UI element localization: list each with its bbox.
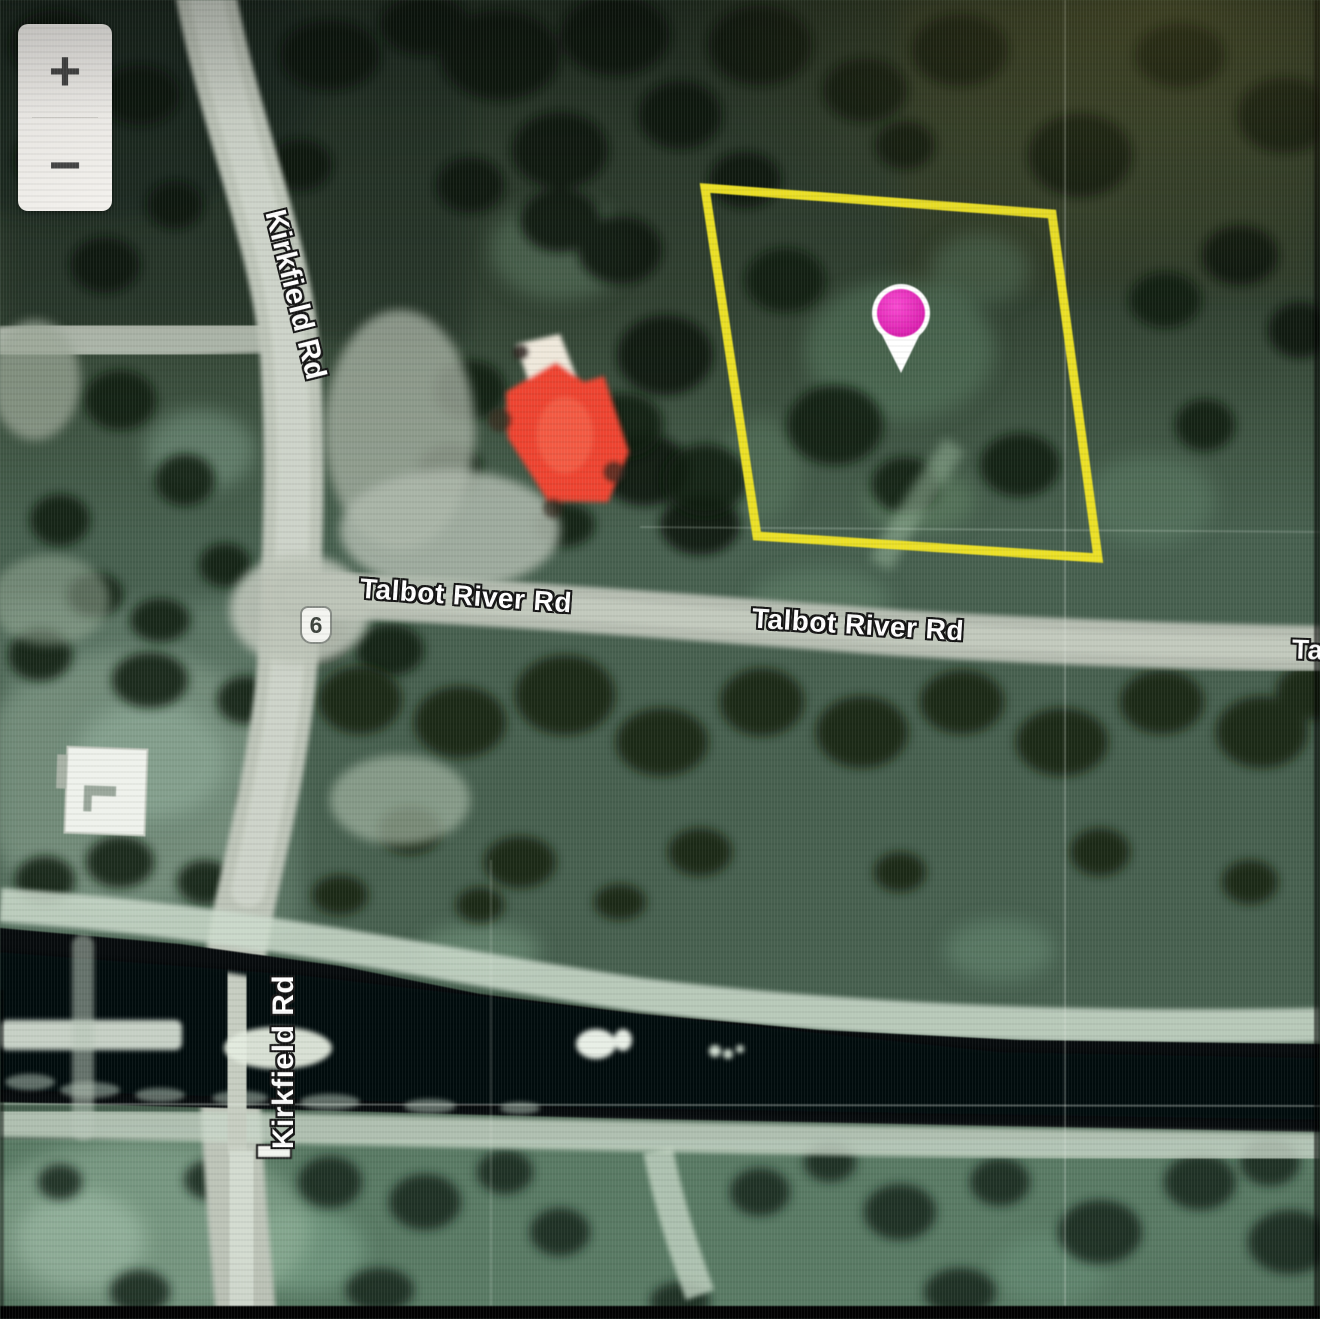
route-6-shield: 6: [300, 606, 332, 644]
road-label-talbot-truncated: Ta: [1292, 635, 1320, 664]
kirkfield-bridge: [232, 975, 242, 1155]
zoom-control: + −: [18, 24, 112, 211]
zoom-out-button[interactable]: −: [18, 118, 112, 211]
canal-wall: [72, 935, 94, 1140]
pin-head: [877, 289, 925, 337]
satellite-imagery: [0, 0, 1320, 1319]
white-building: [55, 746, 148, 835]
road-label-kirkfield-south: Kirkfield Rd: [269, 975, 299, 1149]
zoom-in-button[interactable]: +: [18, 24, 112, 117]
map-container[interactable]: Kirkfield Rd Kirkfield Rd Talbot River R…: [0, 0, 1320, 1319]
